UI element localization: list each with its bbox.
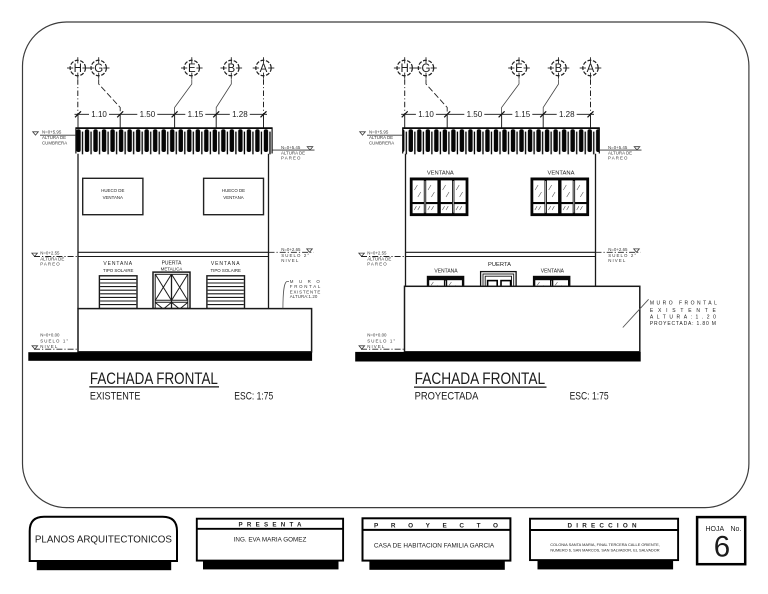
svg-text:No.: No. [731,526,742,533]
svg-text:N=0+2.65: N=0+2.65 [608,247,628,252]
svg-text:VENTANA: VENTANA [548,170,575,176]
svg-text:NIVEL: NIVEL [40,344,58,349]
svg-text:FACHADA FRONTAL: FACHADA FRONTAL [415,370,545,388]
svg-text:N=0+0.00: N=0+0.00 [40,332,60,337]
svg-text:VENTANA: VENTANA [211,261,241,267]
svg-text:E: E [188,63,196,75]
svg-text:CASA DE HABITACION FAMILIA GAR: CASA DE HABITACION FAMILIA GARCIA [374,542,495,549]
svg-text:G: G [422,63,431,75]
svg-text:N=0+5.95: N=0+5.95 [369,130,389,135]
svg-text:METALICA: METALICA [161,267,183,272]
svg-text:ESC: 1:75: ESC: 1:75 [234,390,273,402]
svg-text:PAREO: PAREO [281,155,302,160]
svg-text:VENTANA: VENTANA [103,261,133,267]
svg-text:H: H [74,63,82,75]
svg-text:1.50: 1.50 [467,110,483,119]
svg-text:NIVEL: NIVEL [367,344,385,349]
svg-text:A: A [260,63,268,75]
svg-text:HUECO DE: HUECO DE [101,188,124,193]
svg-text:1.28: 1.28 [232,110,248,119]
svg-text:HUECO DE: HUECO DE [222,188,245,193]
svg-text:PLANOS ARQUITECTONICOS: PLANOS ARQUITECTONICOS [35,535,172,546]
svg-text:VENTANA: VENTANA [541,268,565,274]
svg-text:PUERTA: PUERTA [162,260,182,266]
svg-text:VENTANA: VENTANA [223,195,243,200]
svg-text:VENTANA: VENTANA [427,170,454,176]
svg-text:VENTANA: VENTANA [103,195,123,200]
svg-text:VENTANA: VENTANA [434,268,458,274]
svg-text:ALTURA DE: ALTURA DE [369,135,393,140]
svg-text:N=0+5.95: N=0+5.95 [42,130,62,135]
svg-text:A: A [587,63,595,75]
svg-text:CUMBRERA: CUMBRERA [42,141,67,146]
svg-text:PAREO: PAREO [367,262,388,267]
svg-text:1.15: 1.15 [515,110,531,119]
svg-text:PUERTA: PUERTA [488,262,511,268]
svg-text:ESC: 1:75: ESC: 1:75 [570,390,609,402]
svg-text:PROYECTADA: 1.80 M: PROYECTADA: 1.80 M [650,321,716,327]
svg-text:NUMERO 6, SAN MARCOS, SAN SALV: NUMERO 6, SAN MARCOS, SAN SALVADOR, EL S… [550,547,659,552]
svg-text:B: B [555,63,563,75]
svg-text:N=0+5.45: N=0+5.45 [281,145,301,150]
svg-text:G: G [94,63,103,75]
svg-text:ING. EVA MARIA GOMEZ: ING. EVA MARIA GOMEZ [234,536,307,543]
svg-text:PROYECTADA: PROYECTADA [415,390,480,402]
svg-text:TIPO SOLAIRE: TIPO SOLAIRE [103,268,134,273]
svg-text:1.15: 1.15 [188,110,204,119]
svg-text:1.28: 1.28 [559,110,575,119]
svg-text:N=0+2.55: N=0+2.55 [40,250,60,255]
svg-text:N=0+2.55: N=0+2.55 [367,250,387,255]
svg-text:NIVEL: NIVEL [281,258,299,263]
svg-text:PAREO: PAREO [40,262,61,267]
svg-text:1.10: 1.10 [91,110,107,119]
svg-text:NIVEL: NIVEL [608,258,626,263]
svg-text:EXISTENTE: EXISTENTE [650,308,717,314]
svg-text:N=0+2.65: N=0+2.65 [281,247,301,252]
svg-text:ALTURA DE: ALTURA DE [42,135,66,140]
svg-text:MURO FRONTAL: MURO FRONTAL [650,300,717,306]
svg-text:N=0+5.45: N=0+5.45 [608,145,628,150]
svg-text:H: H [401,63,409,75]
svg-text:SUELO 1°: SUELO 1° [367,339,396,344]
svg-text:ALTURA:1.20: ALTURA:1.20 [650,314,716,320]
svg-text:PAREO: PAREO [608,155,629,160]
svg-text:DIRECCION: DIRECCION [568,523,637,530]
svg-text:CUMBRERA: CUMBRERA [369,141,394,146]
svg-text:6: 6 [714,531,730,564]
svg-text:E: E [515,63,523,75]
svg-text:1.10: 1.10 [418,110,434,119]
svg-text:EXISTENTE: EXISTENTE [90,390,140,402]
svg-text:FACHADA FRONTAL: FACHADA FRONTAL [90,370,218,388]
svg-text:B: B [227,63,235,75]
svg-text:TIPO SOLAIRE: TIPO SOLAIRE [210,268,241,273]
svg-text:COLONIA SANTA MARIA, FINAL TER: COLONIA SANTA MARIA, FINAL TERCERA CALLE… [550,542,660,547]
svg-text:N=0+0.00: N=0+0.00 [367,332,387,337]
svg-text:ALTURA:1.20: ALTURA:1.20 [290,294,318,299]
svg-text:1.50: 1.50 [140,110,156,119]
svg-text:SUELO 1°: SUELO 1° [40,339,69,344]
